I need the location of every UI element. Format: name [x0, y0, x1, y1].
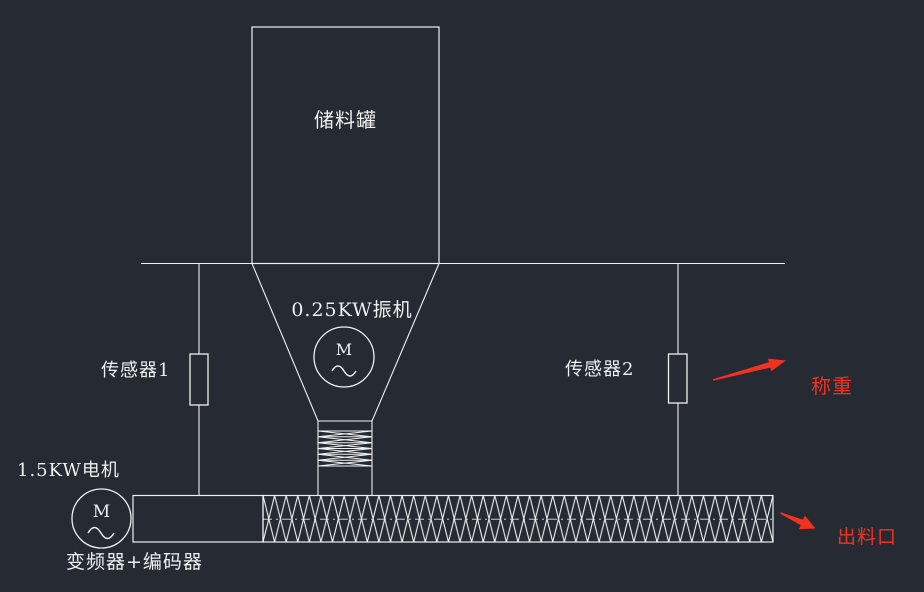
sensor2-assembly — [669, 264, 688, 496]
gearbox-housing — [133, 496, 263, 543]
screw-conveyor — [263, 496, 773, 543]
sensor1-label: 传感器1 — [101, 362, 170, 380]
sensor1-assembly — [190, 264, 208, 496]
outlet-arrow-icon — [780, 512, 815, 529]
sensor2-load-cell — [669, 354, 688, 403]
vibration-spring-coupling — [318, 431, 372, 466]
vibrator-label: 0.25KW振机 — [286, 301, 418, 320]
weighing-arrow-icon — [713, 359, 786, 381]
weighing-label: 称重 — [811, 376, 853, 396]
vibrator-motor-symbol: M — [333, 342, 355, 358]
sensor2-label: 传感器2 — [565, 361, 634, 379]
drive-motor-symbol: M — [90, 504, 113, 521]
outlet-label: 出料口 — [837, 528, 897, 547]
schematic-linework — [0, 0, 924, 592]
storage-tank-outline — [252, 27, 439, 264]
storage-tank-label: 储料罐 — [252, 110, 439, 130]
cad-canvas: 储料罐 0.25KW振机 M 传感器1 传感器2 称重 1.5KW电机 M 变频… — [0, 0, 924, 592]
drive-motor-label: 1.5KW电机 — [17, 462, 120, 480]
sensor1-load-cell — [190, 354, 208, 405]
inverter-encoder-label: 变频器+编码器 — [66, 553, 203, 572]
